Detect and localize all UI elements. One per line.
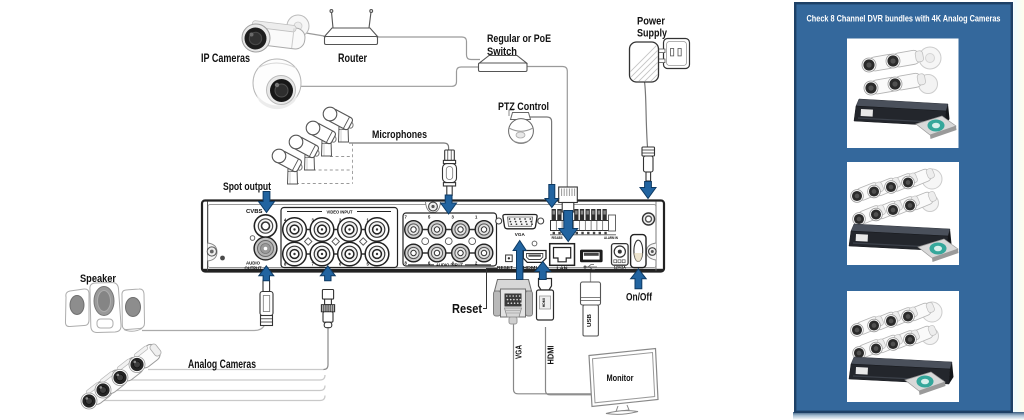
svg-text:VIDEO INPUT: VIDEO INPUT bbox=[327, 209, 353, 214]
svg-text:AUDIO INPUT: AUDIO INPUT bbox=[436, 263, 463, 268]
svg-text:Check 8 Channel DVR bundles wi: Check 8 Channel DVR bundles with 4K Anal… bbox=[807, 14, 1001, 24]
svg-text:Analog Cameras: Analog Cameras bbox=[188, 357, 256, 371]
svg-text:RS485: RS485 bbox=[552, 236, 563, 240]
svg-text:Microphones: Microphones bbox=[372, 129, 427, 141]
svg-text:Speaker: Speaker bbox=[80, 273, 117, 285]
svg-text:PTZ Control: PTZ Control bbox=[498, 101, 549, 113]
svg-text:HDMI: HDMI bbox=[523, 265, 537, 270]
svg-text:Supply: Supply bbox=[637, 28, 668, 40]
svg-text:Monitor: Monitor bbox=[607, 373, 634, 384]
svg-text:ALARM IN: ALARM IN bbox=[604, 236, 618, 240]
svg-text:Power: Power bbox=[637, 16, 666, 28]
svg-text:OUTPUT: OUTPUT bbox=[245, 266, 262, 271]
svg-text:Switch: Switch bbox=[487, 46, 517, 58]
svg-text:Router: Router bbox=[338, 51, 367, 65]
svg-text:USB: USB bbox=[587, 314, 593, 327]
svg-text:On/Off: On/Off bbox=[626, 292, 652, 304]
svg-text:VGA: VGA bbox=[515, 345, 524, 359]
svg-text:CVBS: CVBS bbox=[246, 209, 263, 215]
svg-text:VGA: VGA bbox=[515, 232, 526, 237]
svg-text:12V/2A: 12V/2A bbox=[614, 265, 627, 269]
svg-text:LAN: LAN bbox=[557, 266, 569, 271]
svg-text:HDMI: HDMI bbox=[547, 346, 556, 365]
svg-text:RESET: RESET bbox=[497, 265, 513, 270]
svg-text:Spot output: Spot output bbox=[223, 181, 271, 193]
svg-text:HDMI: HDMI bbox=[542, 298, 546, 307]
svg-text:Regular or PoE: Regular or PoE bbox=[487, 33, 551, 45]
svg-text:IP Cameras: IP Cameras bbox=[201, 51, 250, 65]
svg-text:Reset: Reset bbox=[452, 301, 483, 316]
